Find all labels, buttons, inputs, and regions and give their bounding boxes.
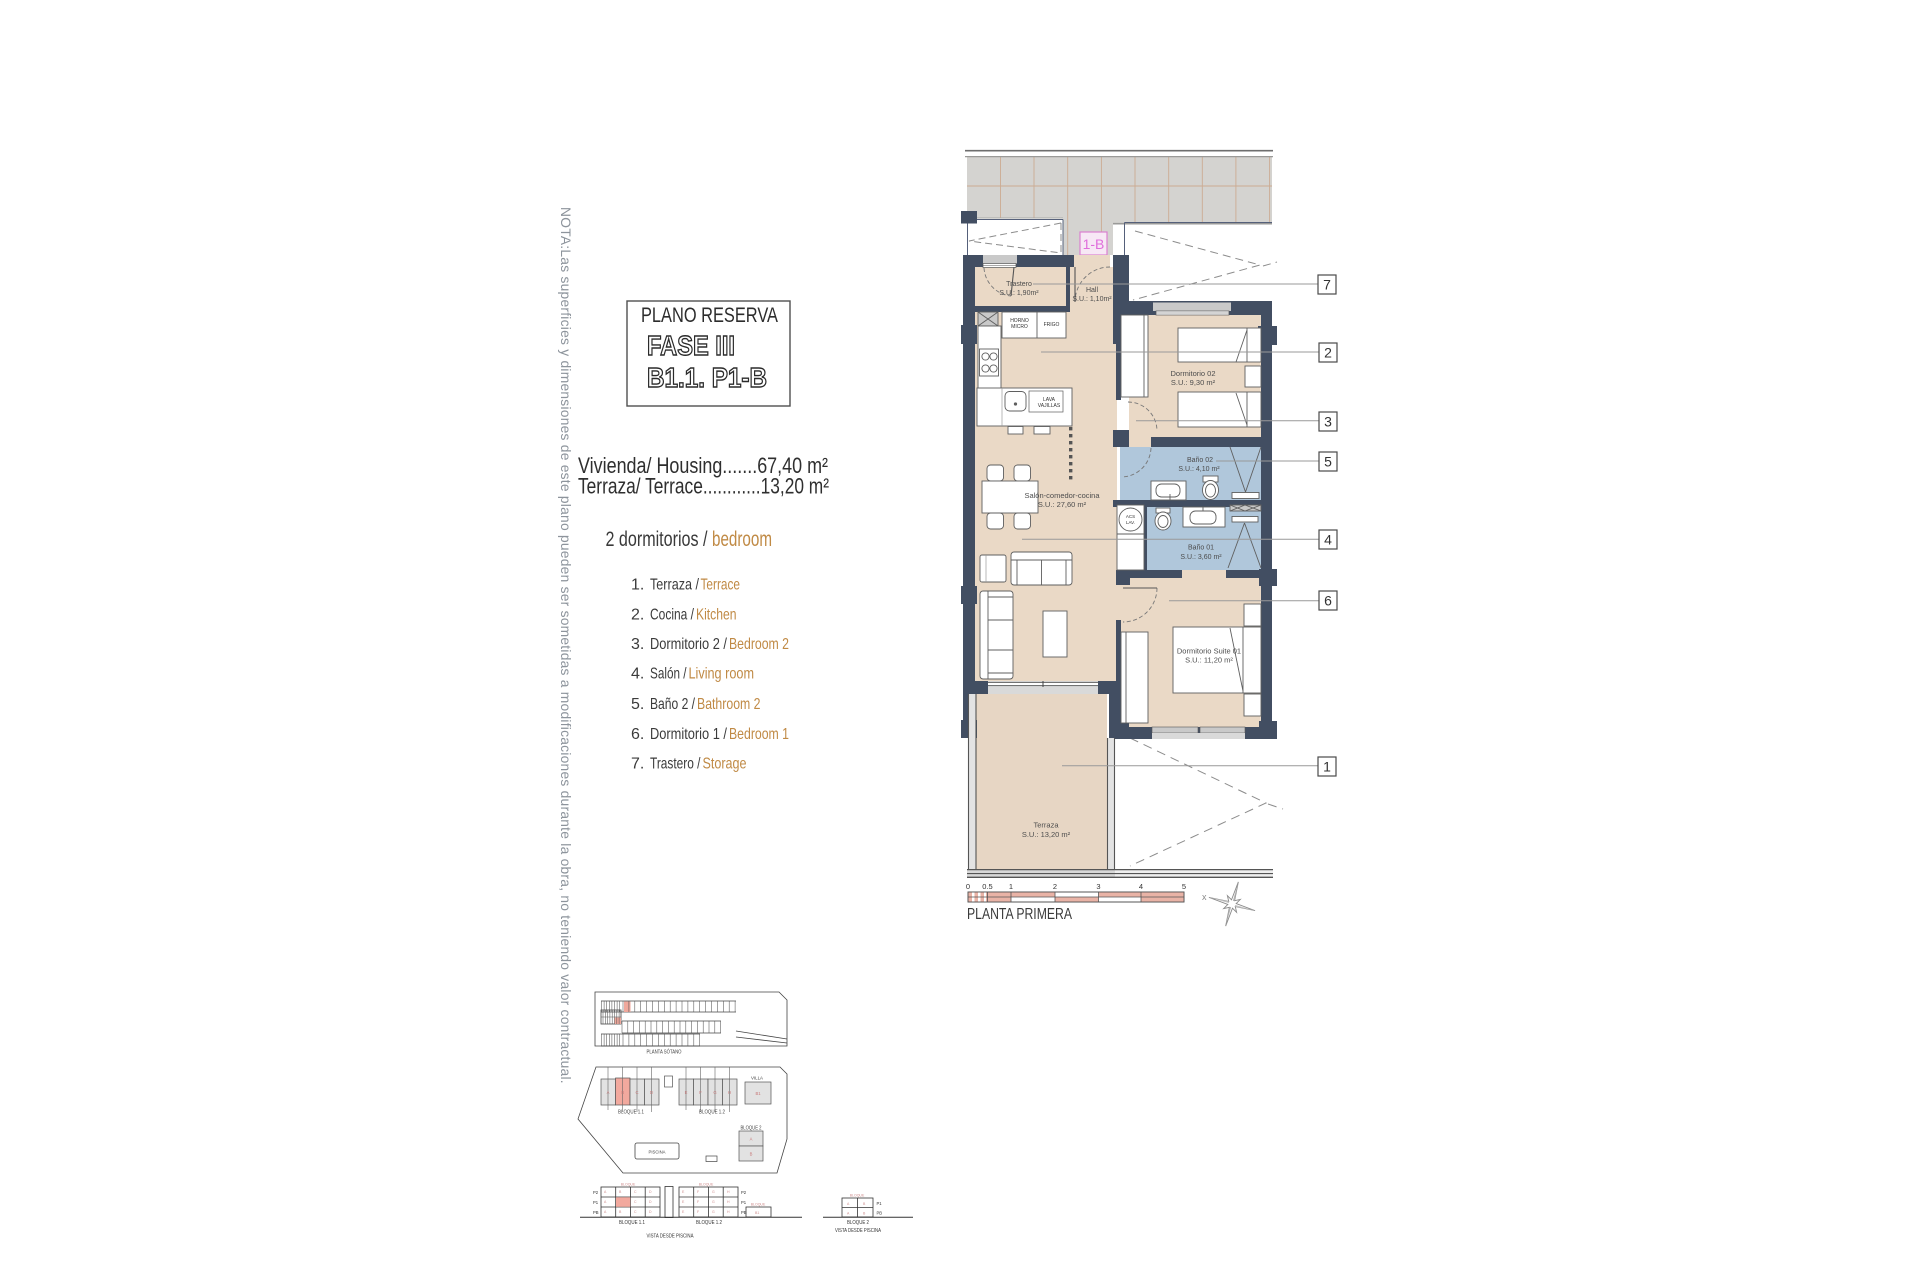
svg-text:PLANO RESERVA: PLANO RESERVA: [641, 304, 778, 327]
svg-text:1-B: 1-B: [1083, 236, 1105, 252]
svg-text:S.U.: 27,60 m²: S.U.: 27,60 m²: [1038, 500, 1087, 509]
svg-text:Hall: Hall: [1086, 287, 1099, 294]
svg-text:S.U.: 4,10 m²: S.U.: 4,10 m²: [1178, 466, 1220, 473]
svg-text:Terraza: Terraza: [1033, 821, 1059, 830]
svg-text:P2: P2: [741, 1190, 747, 1195]
svg-text:BLOQUE 1.2: BLOQUE 1.2: [696, 1220, 722, 1226]
svg-text:0: 0: [966, 882, 970, 891]
svg-text:BLOQUE: BLOQUE: [621, 1183, 636, 1187]
svg-text:PB: PB: [593, 1210, 599, 1215]
svg-text:P1: P1: [741, 1200, 747, 1205]
svg-text:7.: 7.: [631, 756, 644, 773]
svg-text:BLOQUE: BLOQUE: [850, 1194, 865, 1198]
svg-text:3.: 3.: [631, 636, 644, 653]
svg-text:0.5: 0.5: [982, 882, 992, 891]
svg-text:S.U.: 1,10m²: S.U.: 1,10m²: [1072, 296, 1112, 303]
svg-text:FRIGO: FRIGO: [1044, 322, 1060, 328]
svg-text:H: H: [728, 1090, 731, 1095]
svg-text:5: 5: [1324, 454, 1332, 470]
svg-text:P1: P1: [877, 1201, 883, 1206]
svg-text:B1: B1: [755, 1211, 759, 1215]
svg-text:4: 4: [1324, 532, 1332, 548]
svg-text:B: B: [621, 1090, 624, 1095]
svg-text:Storage: Storage: [703, 756, 747, 773]
svg-text:P1: P1: [593, 1200, 599, 1205]
svg-text:Bathroom 2: Bathroom 2: [697, 696, 761, 713]
svg-text:Kitchen: Kitchen: [696, 607, 737, 624]
svg-text:Terraza /: Terraza /: [650, 577, 699, 594]
svg-text:Trastero: Trastero: [1006, 281, 1032, 288]
svg-text:VISTA DESDE PISCINA: VISTA DESDE PISCINA: [835, 1228, 881, 1234]
svg-text:G: G: [713, 1090, 716, 1095]
svg-text:Bedroom 1: Bedroom 1: [729, 726, 789, 743]
svg-text:PISCINA: PISCINA: [649, 1150, 666, 1155]
svg-text:Baño 2 /: Baño 2 /: [650, 696, 695, 713]
svg-text:S.U.: 1,90m²: S.U.: 1,90m²: [999, 290, 1039, 297]
svg-text:S.U.: 13,20 m²: S.U.: 13,20 m²: [1022, 830, 1071, 839]
svg-text:2: 2: [1053, 882, 1057, 891]
svg-text:x: x: [1202, 892, 1207, 902]
svg-text:MICRO: MICRO: [1011, 324, 1028, 330]
svg-text:5: 5: [1182, 882, 1186, 891]
svg-text:2.: 2.: [631, 607, 644, 624]
svg-text:Baño 01: Baño 01: [1188, 545, 1214, 552]
svg-text:PLANTA SÓTANO: PLANTA SÓTANO: [647, 1049, 682, 1056]
svg-text:E: E: [685, 1090, 688, 1095]
svg-text:7: 7: [1323, 277, 1331, 293]
svg-text:6: 6: [1324, 593, 1332, 609]
svg-text:F: F: [697, 1190, 699, 1194]
svg-text:PLANTA PRIMERA: PLANTA PRIMERA: [967, 906, 1073, 923]
svg-text:bedroom: bedroom: [712, 528, 772, 551]
svg-text:3: 3: [1324, 414, 1332, 430]
svg-text:5.: 5.: [631, 696, 644, 713]
svg-text:Baño 02: Baño 02: [1187, 457, 1213, 464]
svg-text:BLOQUE 1.1: BLOQUE 1.1: [619, 1220, 645, 1226]
svg-text:BLOQUE 1.1: BLOQUE 1.1: [618, 1110, 644, 1116]
svg-text:6.: 6.: [631, 726, 644, 743]
svg-text:Salón /: Salón /: [650, 666, 687, 683]
svg-text:1: 1: [1323, 759, 1331, 775]
svg-text:LAV.: LAV.: [1126, 520, 1135, 525]
svg-text:B: B: [750, 1152, 753, 1157]
svg-text:4: 4: [1139, 882, 1143, 891]
svg-text:VAJILLAS: VAJILLAS: [1038, 403, 1061, 409]
svg-text:P2: P2: [593, 1190, 599, 1195]
svg-text:Bedroom 2: Bedroom 2: [729, 636, 789, 653]
svg-text:FASE III: FASE III: [647, 330, 735, 361]
svg-text:2 dormitorios /: 2 dormitorios /: [606, 528, 708, 551]
svg-text:B1: B1: [755, 1091, 761, 1096]
svg-text:C: C: [635, 1090, 638, 1095]
svg-text:Living room: Living room: [689, 666, 755, 683]
svg-text:BLOQUE 2: BLOQUE 2: [741, 1126, 762, 1132]
svg-text:F: F: [697, 1210, 699, 1214]
svg-text:G: G: [712, 1190, 715, 1194]
svg-text:S.U.: 3,60 m²: S.U.: 3,60 m²: [1180, 554, 1222, 561]
svg-text:A: A: [607, 1090, 610, 1095]
svg-text:1.: 1.: [631, 577, 644, 594]
svg-text:NOTA:Las superficies y dimensi: NOTA:Las superficies y dimensiones de es…: [558, 207, 573, 1084]
svg-text:Dormitorio 2 /: Dormitorio 2 /: [650, 636, 727, 653]
svg-text:PB: PB: [877, 1211, 883, 1216]
svg-text:BLOQUE: BLOQUE: [751, 1203, 766, 1207]
svg-text:4.: 4.: [631, 666, 644, 683]
svg-text:Dormitorio Suite 01: Dormitorio Suite 01: [1177, 647, 1241, 656]
svg-text:Cocina /: Cocina /: [650, 607, 694, 624]
svg-text:PB: PB: [741, 1210, 747, 1215]
svg-text:ACS: ACS: [1126, 514, 1135, 519]
svg-text:G: G: [712, 1200, 715, 1204]
svg-text:Dormitorio 1 /: Dormitorio 1 /: [650, 726, 727, 743]
svg-text:BLOQUE 2: BLOQUE 2: [847, 1220, 869, 1226]
svg-text:G: G: [712, 1210, 715, 1214]
svg-text:B1.1. P1-B: B1.1. P1-B: [647, 362, 767, 393]
svg-text:VILLA: VILLA: [751, 1076, 763, 1081]
svg-text:D: D: [650, 1090, 653, 1095]
svg-text:VISTA DESDE PISCINA: VISTA DESDE PISCINA: [647, 1234, 694, 1240]
svg-text:BLOQUE: BLOQUE: [699, 1183, 714, 1187]
svg-text:2: 2: [1324, 345, 1332, 361]
svg-text:Terrace: Terrace: [701, 577, 741, 594]
svg-text:F: F: [697, 1200, 699, 1204]
svg-text:F: F: [699, 1090, 702, 1095]
svg-text:S.U.: 9,30 m²: S.U.: 9,30 m²: [1171, 378, 1216, 387]
svg-text:S.U.: 11,20 m²: S.U.: 11,20 m²: [1185, 656, 1233, 665]
svg-text:3: 3: [1096, 882, 1100, 891]
svg-text:Terraza/ Terrace............13: Terraza/ Terrace............13,20 m²: [578, 474, 829, 499]
svg-text:A: A: [750, 1137, 753, 1142]
svg-text:BLOQUE 1.2: BLOQUE 1.2: [699, 1110, 725, 1116]
svg-text:Dormitorio 02: Dormitorio 02: [1170, 369, 1215, 378]
svg-text:Salón-comedor-cocina: Salón-comedor-cocina: [1024, 491, 1100, 500]
svg-text:1: 1: [1009, 882, 1013, 891]
svg-text:Trastero /: Trastero /: [650, 756, 701, 773]
